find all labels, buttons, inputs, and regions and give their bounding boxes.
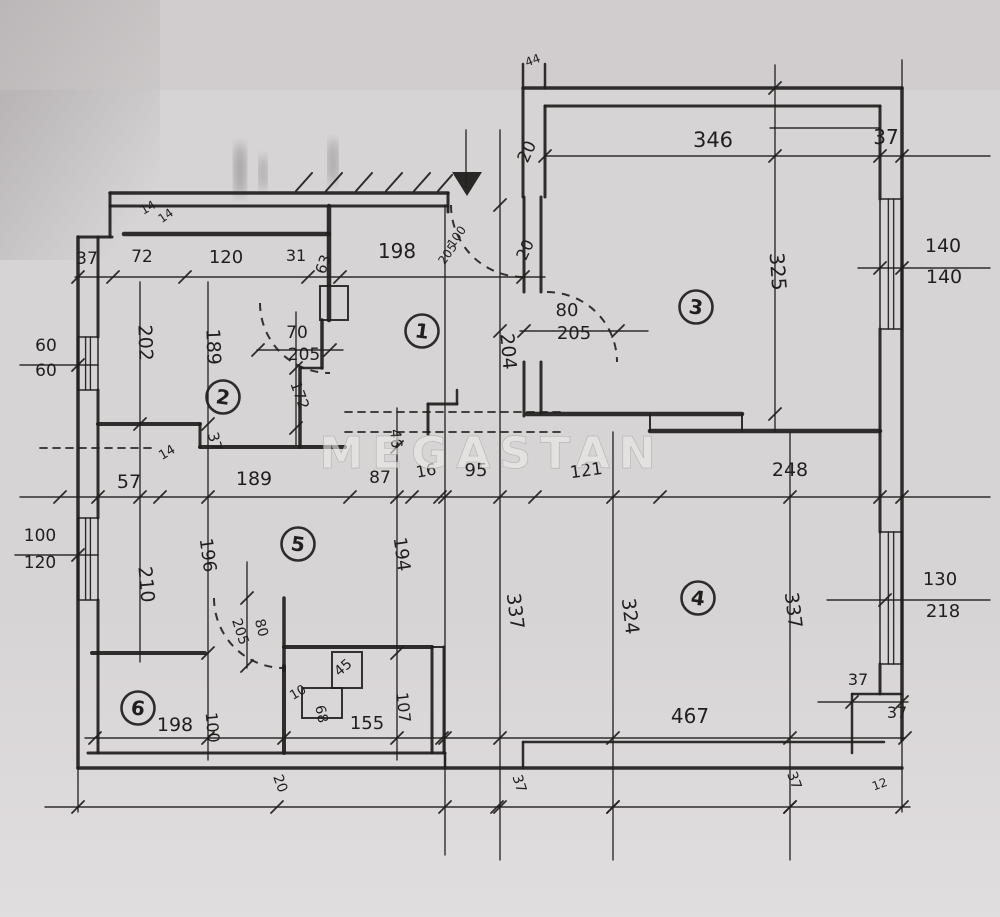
dim-label-37: 37 [873,125,898,149]
floor-plan-drawing: 3463720441401403258020520204198100205377… [0,0,1000,917]
dim-label-80: 80 [556,300,579,321]
dim-label-37: 37 [76,249,98,269]
dim-label-37: 37 [887,703,907,722]
dim-label-72: 72 [131,247,153,267]
dim-label-37: 37 [848,670,868,689]
dim-label-337: 337 [502,592,528,631]
dim-label-324: 324 [617,597,643,636]
floor-plan-page: 3463720441401403258020520204198100205377… [0,0,1000,917]
dim-label-218: 218 [926,601,960,622]
dim-label-155: 155 [350,713,384,734]
dim-label-120: 120 [24,553,56,573]
dim-label-189: 189 [236,468,272,490]
dim-label-467: 467 [671,704,709,728]
dim-label-31: 31 [286,246,306,265]
dim-label-130: 130 [923,569,957,590]
dim-label-189: 189 [201,328,224,365]
dim-label-337: 337 [780,591,806,630]
dim-label-70: 70 [286,323,308,343]
megastan-watermark: MEGASTAN [319,428,664,479]
dim-label-202: 202 [133,324,156,361]
dim-label-248: 248 [772,459,808,481]
dim-label-100: 100 [202,711,224,743]
dim-label-204: 204 [495,332,520,370]
dim-label-60: 60 [35,361,57,381]
dim-label-198: 198 [157,714,193,736]
dim-label-140: 140 [926,266,962,288]
photo-shade-top [0,0,1000,90]
dim-label-205: 205 [288,345,320,365]
dim-label-107: 107 [392,691,414,723]
dim-label-210: 210 [133,565,158,603]
dim-label-60: 60 [35,336,57,356]
dim-label-140: 140 [925,235,961,257]
dim-label-100: 100 [24,526,56,546]
photo-smudge [259,155,267,191]
dim-label-198: 198 [378,239,416,263]
dim-label-346: 346 [693,128,733,152]
dim-label-120: 120 [209,247,243,268]
dim-label-325: 325 [765,252,792,292]
dim-label-57: 57 [117,471,141,493]
photo-smudge [234,143,246,197]
dim-label-205: 205 [557,323,591,344]
